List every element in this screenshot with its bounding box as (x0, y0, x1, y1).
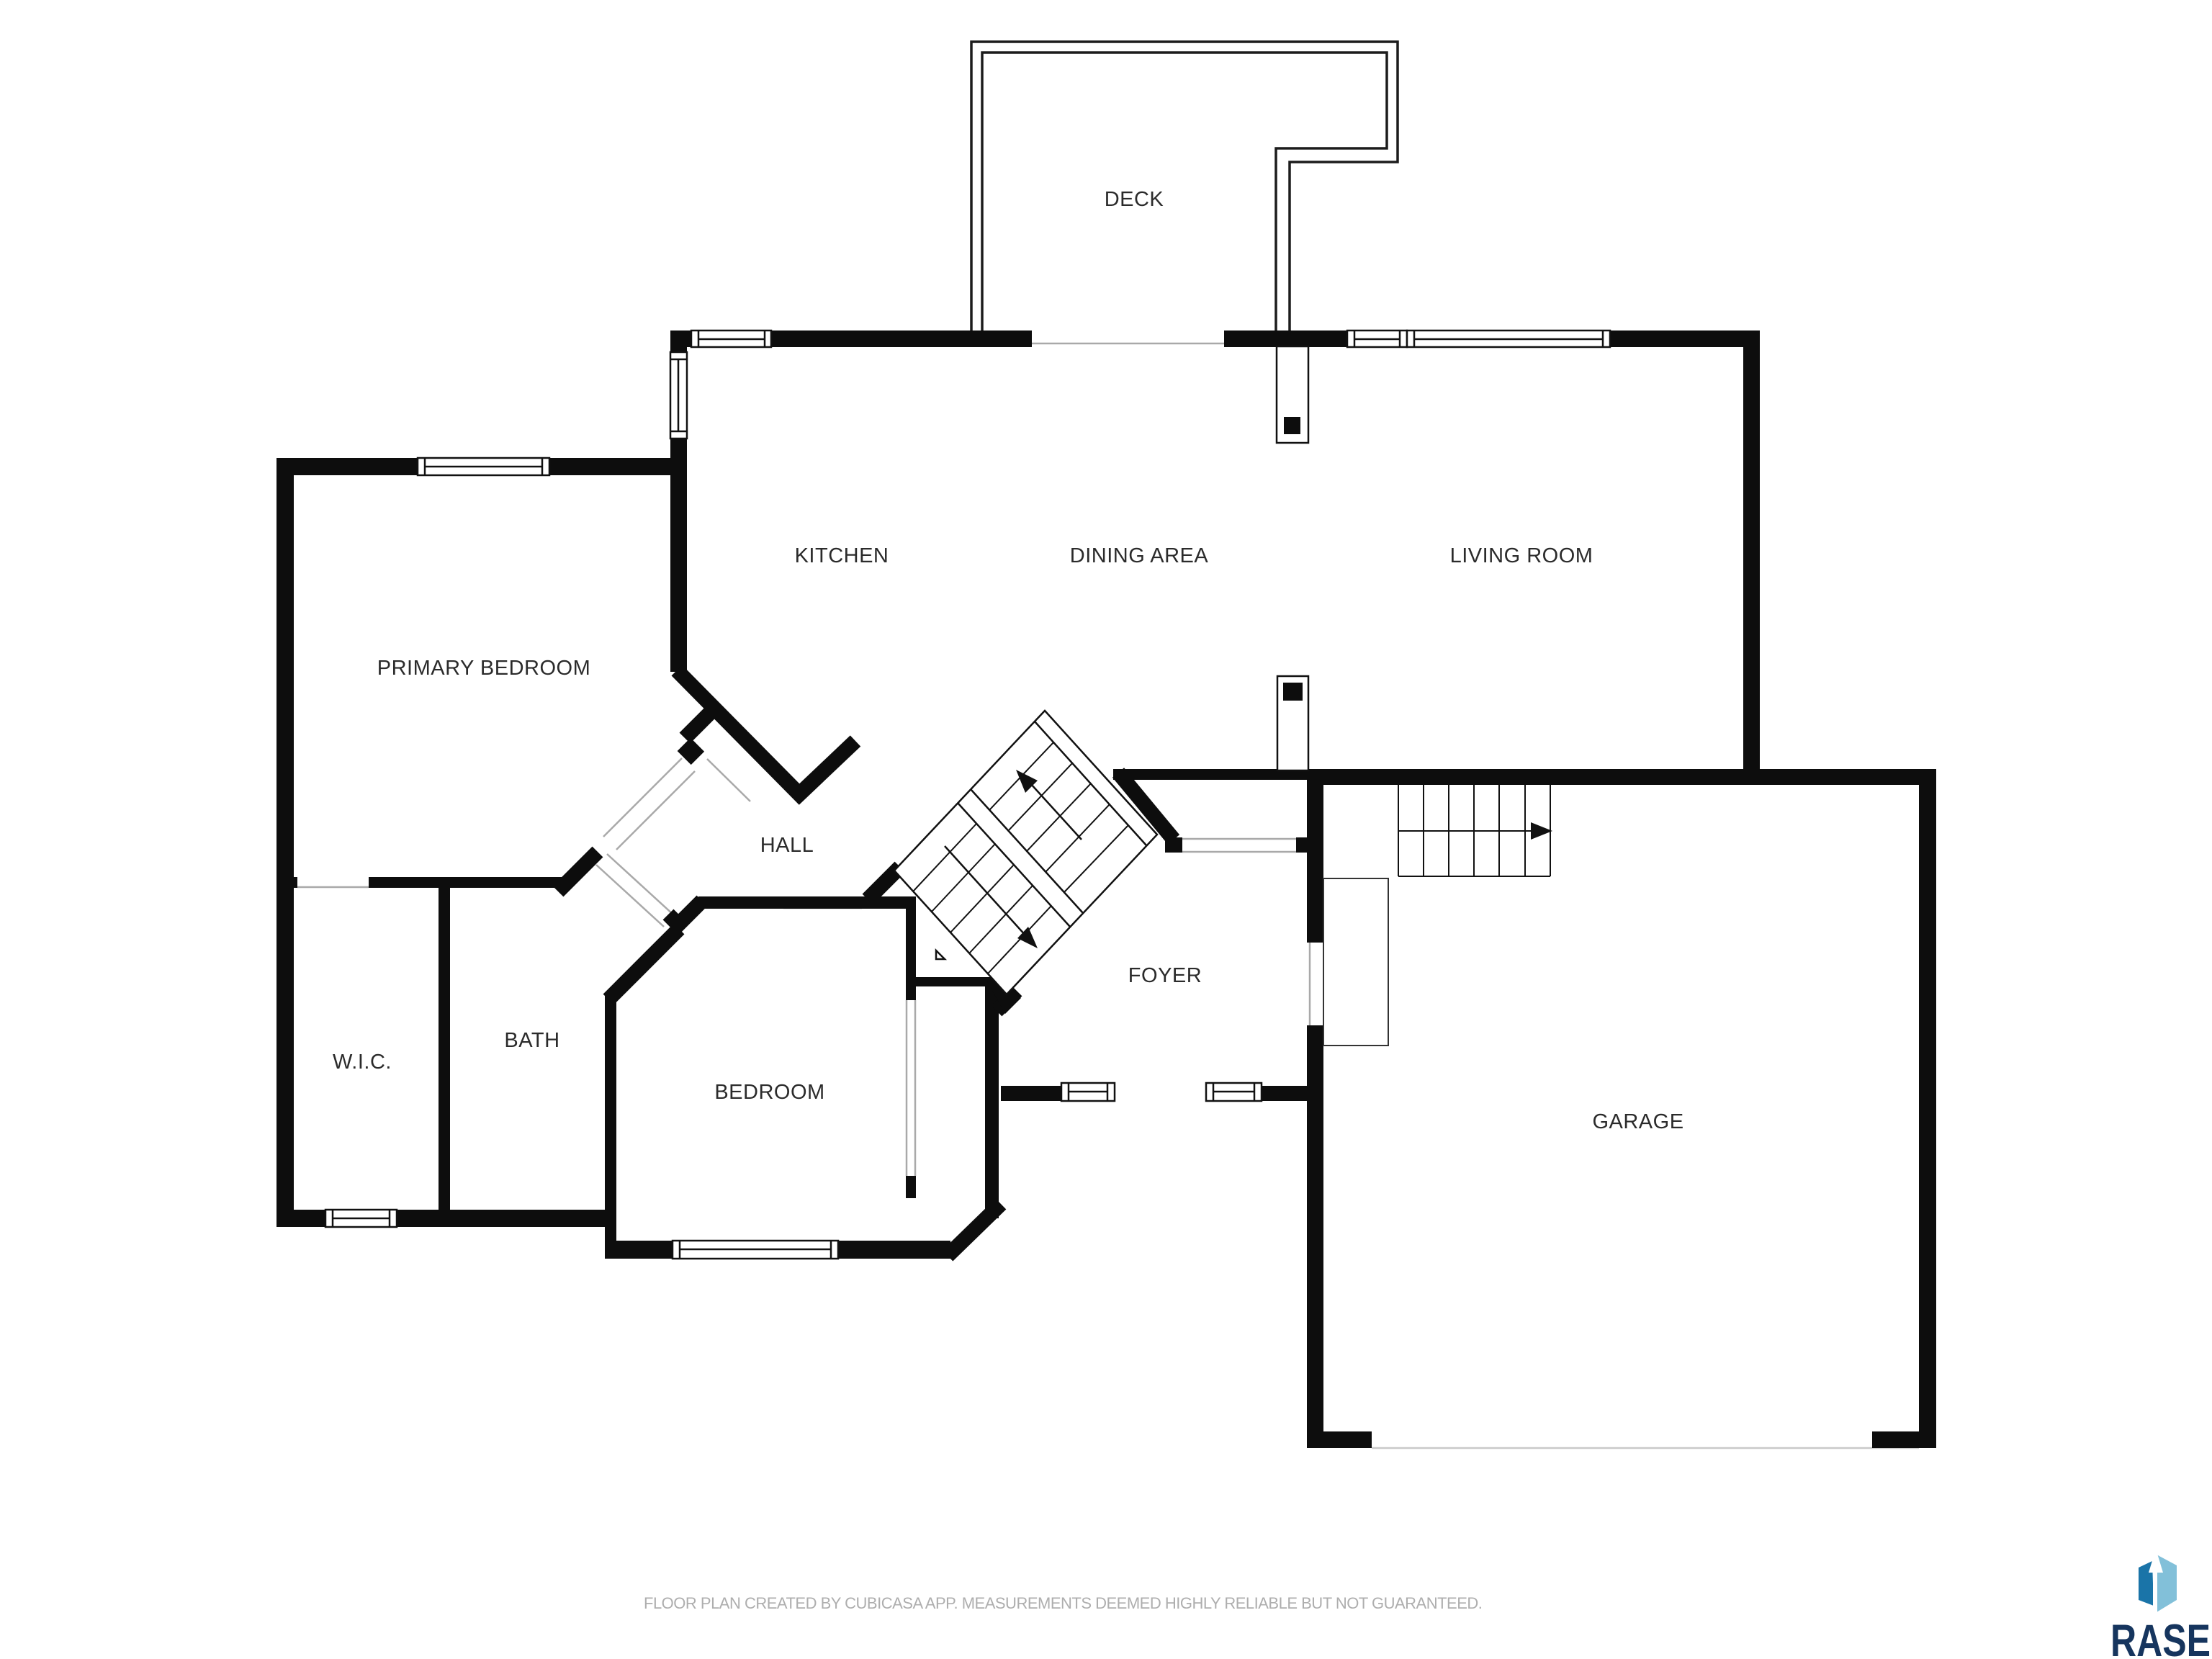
svg-text:FOYER: FOYER (1128, 964, 1202, 987)
svg-text:RASE: RASE (2110, 1616, 2211, 1659)
svg-text:KITCHEN: KITCHEN (795, 544, 889, 567)
svg-text:W.I.C.: W.I.C. (333, 1051, 392, 1074)
svg-text:HALL: HALL (760, 834, 814, 857)
svg-text:GARAGE: GARAGE (1592, 1110, 1683, 1133)
svg-text:BATH: BATH (504, 1029, 559, 1052)
svg-text:LIVING ROOM: LIVING ROOM (1450, 544, 1593, 567)
svg-text:PRIMARY BEDROOM: PRIMARY BEDROOM (377, 657, 590, 680)
svg-text:DECK: DECK (1105, 188, 1164, 211)
svg-text:BEDROOM: BEDROOM (714, 1081, 824, 1104)
svg-text:FLOOR PLAN CREATED BY CUBICASA: FLOOR PLAN CREATED BY CUBICASA APP. MEAS… (644, 1594, 1482, 1612)
svg-text:DINING AREA: DINING AREA (1070, 544, 1209, 567)
